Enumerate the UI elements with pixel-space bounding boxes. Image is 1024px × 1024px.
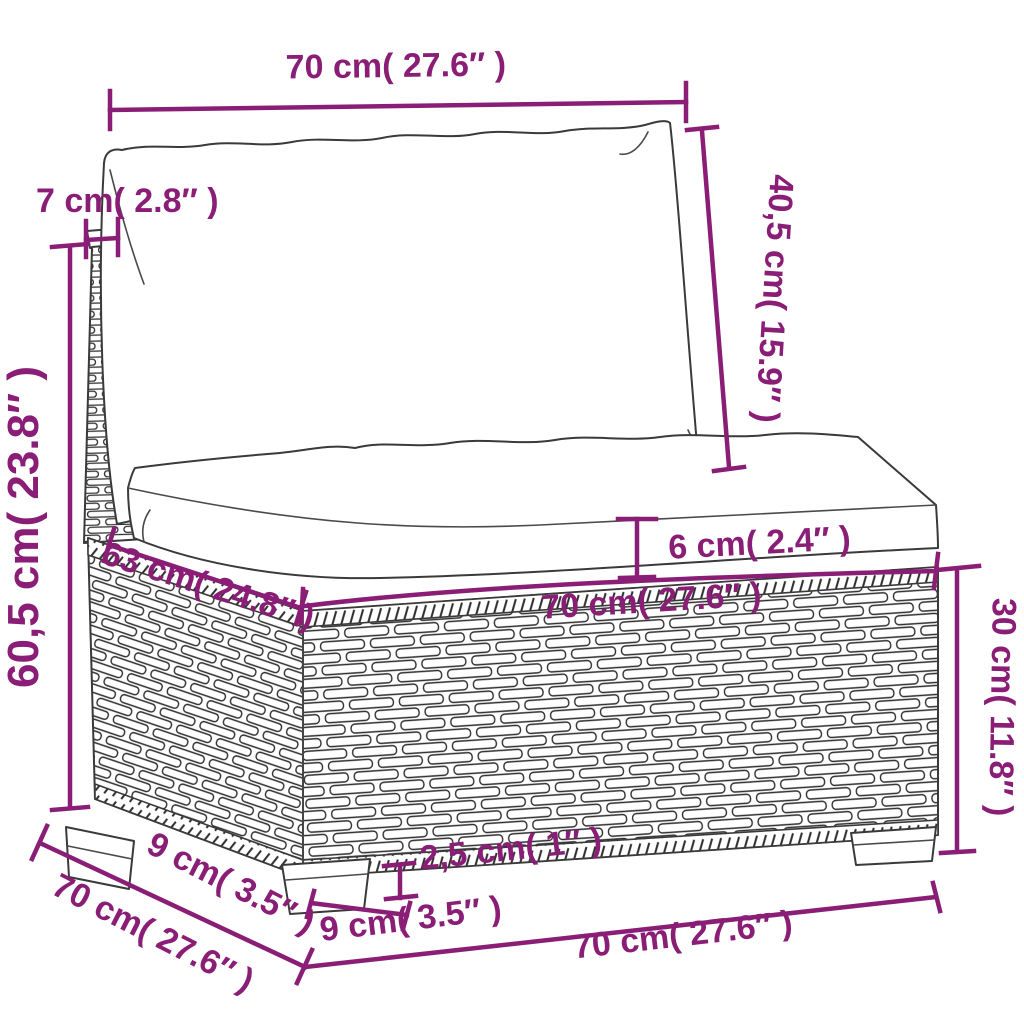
dim-total-height: 60,5 cm( 23.8″ )	[0, 244, 88, 810]
dim-seat-cushion-thickness-label: 6 cm( 2.4″ )	[667, 519, 851, 567]
dim-bottom-front-width-label: 70 cm( 27.6″ )	[571, 904, 794, 967]
dim-top-width-line	[110, 102, 686, 110]
foot-front-right	[851, 827, 936, 865]
dim-back-post-width-label: 7 cm( 2.8″ )	[36, 182, 219, 220]
sofa-illustration	[66, 121, 938, 914]
dim-top-width-label: 70 cm( 27.6″ )	[285, 45, 506, 86]
dim-back-post-width-bar	[86, 238, 118, 240]
dim-base-height-label: 30 cm( 11.8″ )	[981, 598, 1023, 817]
dim-backrest-height-line	[702, 131, 729, 467]
dim-backrest-height-tick-top	[687, 127, 717, 130]
dim-total-height-cap-top	[52, 244, 88, 247]
sofa-dimension-svg: 70 cm( 27.6″ ) 7 cm( 2.8″ ) 40,5 cm( 15.…	[0, 0, 1024, 1024]
dim-top-width: 70 cm( 27.6″ )	[110, 45, 686, 129]
dim-base-height-cap-bottom	[941, 851, 974, 853]
dimension-diagram: 70 cm( 27.6″ ) 7 cm( 2.8″ ) 40,5 cm( 15.…	[0, 0, 1024, 1024]
dim-base-height-cap-top	[937, 566, 979, 570]
dim-total-height-label: 60,5 cm( 23.8″ )	[0, 366, 48, 688]
dim-backrest-height-label: 40,5 cm( 15.9″ )	[747, 173, 800, 424]
dim-backrest-height: 40,5 cm( 15.9″ )	[687, 127, 801, 471]
dim-base-depth-tick-top	[32, 826, 47, 859]
dim-total-height-cap-bottom	[52, 807, 88, 810]
dim-base-height: 30 cm( 11.8″ )	[937, 566, 1023, 853]
dim-seat-front-width-tick-left	[301, 589, 303, 623]
